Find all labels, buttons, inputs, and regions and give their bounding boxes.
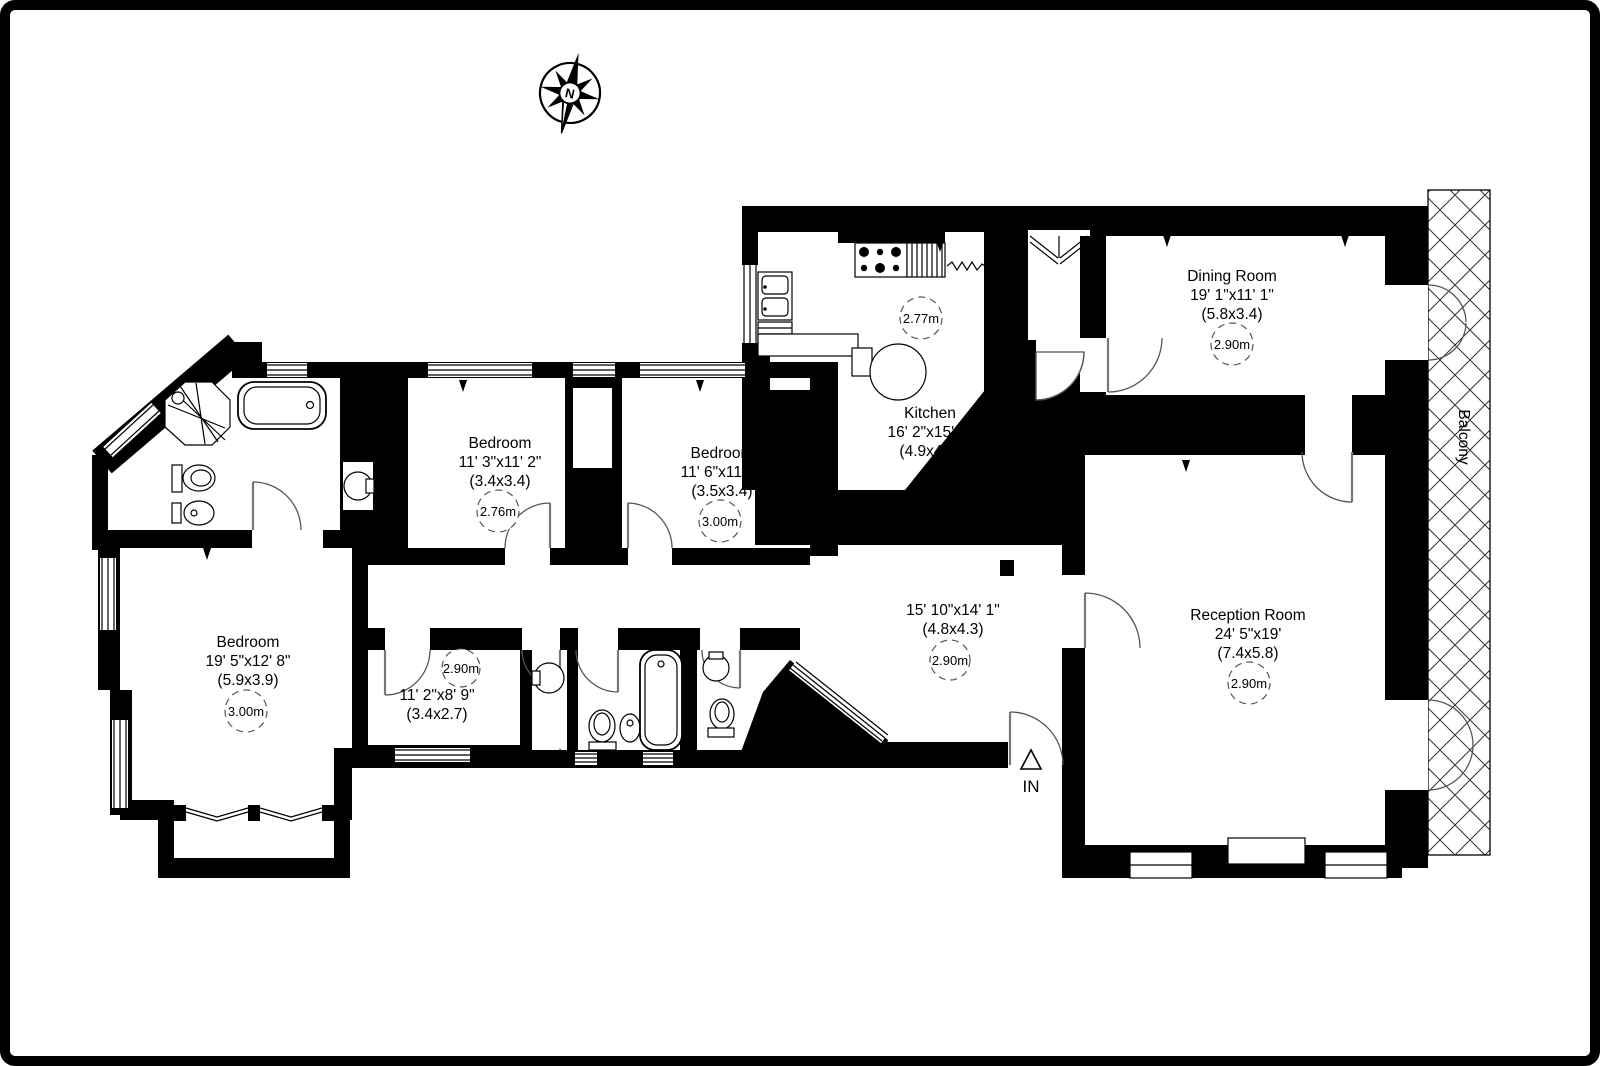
svg-text:(5.8x3.4): (5.8x3.4)	[1201, 306, 1262, 323]
door-bathroom2	[576, 650, 618, 692]
balcony	[1428, 190, 1490, 855]
sink-icon	[703, 652, 729, 681]
compass-icon: N	[532, 47, 608, 140]
room-label-reception: Reception Room 24' 5"x19' (7.4x5.8) 2.90…	[1190, 607, 1305, 704]
bathtub-icon	[238, 382, 326, 429]
svg-text:Bedroom: Bedroom	[469, 435, 532, 452]
svg-text:19' 1"x11' 1": 19' 1"x11' 1"	[1190, 287, 1274, 304]
svg-text:16' 2"x15' 1": 16' 2"x15' 1"	[887, 424, 972, 441]
kitchen-counter-icon	[907, 243, 985, 277]
room-label-bedroom2: Bedroom 11' 6"x11' 3" (3.5x3.4) 3.00m	[681, 445, 764, 542]
svg-text:2.90m: 2.90m	[1214, 337, 1250, 352]
floor-plan: Dining Room 19' 1"x11' 1" (5.8x3.4) 2.90…	[0, 0, 1600, 1066]
toilet-icon	[589, 710, 616, 750]
toilet-icon	[708, 699, 734, 737]
closet-doors	[1030, 236, 1088, 264]
svg-text:Bedroom: Bedroom	[691, 445, 754, 462]
door-bathroom1	[253, 482, 301, 530]
shower-icon	[165, 382, 230, 445]
svg-text:2.76m: 2.76m	[480, 504, 516, 519]
svg-text:11' 6"x11' 3": 11' 6"x11' 3"	[681, 464, 764, 481]
door-reception	[1085, 593, 1140, 648]
svg-text:2.90m: 2.90m	[932, 653, 968, 668]
window-bedroom1	[428, 363, 532, 377]
window-inner-hall	[395, 748, 470, 762]
svg-text:Reception Room: Reception Room	[1190, 607, 1305, 624]
room-label-hallway: 15' 10"x14' 1" (4.8x4.3) 2.90m	[906, 602, 1000, 680]
bidet-icon	[172, 501, 214, 525]
door-bedroom2	[628, 503, 672, 548]
svg-text:11' 2"x8' 9": 11' 2"x8' 9"	[399, 687, 474, 704]
room-label-bedroom1: Bedroom 11' 3"x11' 2" (3.4x3.4) 2.76m	[459, 435, 542, 532]
svg-text:24' 5"x19': 24' 5"x19'	[1215, 626, 1282, 643]
svg-text:Dining Room: Dining Room	[1187, 268, 1277, 285]
door-dining-reception	[1302, 452, 1352, 502]
svg-text:2.77m: 2.77m	[903, 311, 939, 326]
svg-text:3.00m: 3.00m	[702, 514, 738, 529]
fireplace-icon	[1228, 838, 1305, 864]
window-bathroom1	[267, 363, 307, 377]
svg-text:(3.4x3.4): (3.4x3.4)	[469, 473, 530, 490]
window-niche	[573, 363, 615, 377]
room-label-dining: Dining Room 19' 1"x11' 1" (5.8x3.4) 2.90…	[1187, 268, 1277, 365]
svg-text:Kitchen: Kitchen	[904, 405, 956, 422]
svg-text:Bedroom: Bedroom	[217, 634, 280, 651]
svg-text:(5.9x3.9): (5.9x3.9)	[217, 672, 278, 689]
svg-text:19' 5"x12' 8": 19' 5"x12' 8"	[205, 653, 290, 670]
svg-text:2.90m: 2.90m	[1231, 676, 1267, 691]
svg-text:(3.5x3.4): (3.5x3.4)	[691, 483, 752, 500]
window-kitchen	[742, 265, 758, 343]
window-bedroom2	[640, 363, 745, 377]
entrance-label: IN	[1023, 777, 1040, 796]
bidet-icon	[620, 714, 640, 742]
svg-text:3.00m: 3.00m	[228, 704, 264, 719]
svg-text:(4.8x4.3): (4.8x4.3)	[922, 621, 983, 638]
kitchen-sink-icon	[758, 272, 792, 320]
svg-text:11' 3"x11' 2": 11' 3"x11' 2"	[459, 454, 542, 471]
floor-plan-page: Dining Room 19' 1"x11' 1" (5.8x3.4) 2.90…	[0, 0, 1600, 1066]
svg-text:(7.4x5.8): (7.4x5.8)	[1217, 645, 1278, 662]
toilet-icon	[172, 465, 215, 492]
bathtub-icon	[640, 650, 682, 750]
balcony-label: Balcony	[1455, 409, 1472, 464]
stove-icon	[855, 243, 907, 277]
svg-text:(3.4x2.7): (3.4x2.7)	[406, 706, 467, 723]
door-dining	[1108, 338, 1162, 392]
svg-text:(4.9x4.6): (4.9x4.6)	[899, 443, 960, 460]
room-label-bedroom3: Bedroom 19' 5"x12' 8" (5.9x3.9) 3.00m	[205, 634, 290, 732]
svg-text:15' 10"x14' 1": 15' 10"x14' 1"	[906, 602, 1000, 619]
sink-icon	[532, 663, 564, 693]
svg-text:2.90m: 2.90m	[443, 661, 479, 676]
